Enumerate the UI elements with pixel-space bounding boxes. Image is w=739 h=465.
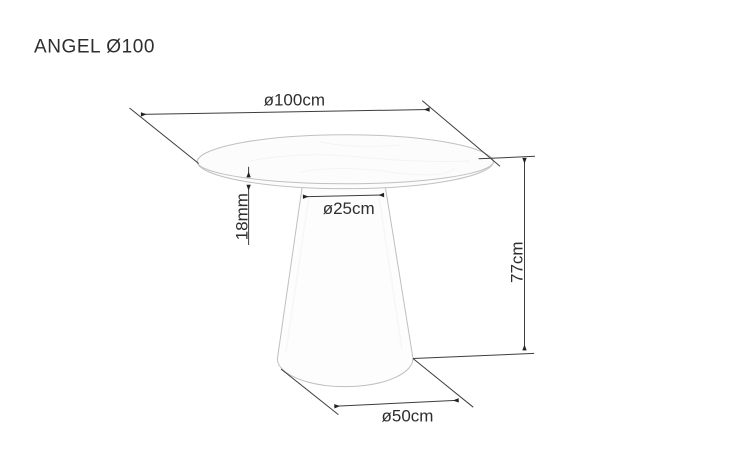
svg-text:77cm: 77cm — [507, 241, 526, 283]
svg-text:ø100cm: ø100cm — [264, 90, 325, 109]
svg-text:18mm: 18mm — [232, 193, 251, 240]
svg-text:ANGEL Ø100: ANGEL Ø100 — [34, 37, 155, 58]
svg-text:ø25cm: ø25cm — [323, 199, 375, 218]
svg-text:ø50cm: ø50cm — [382, 407, 434, 426]
